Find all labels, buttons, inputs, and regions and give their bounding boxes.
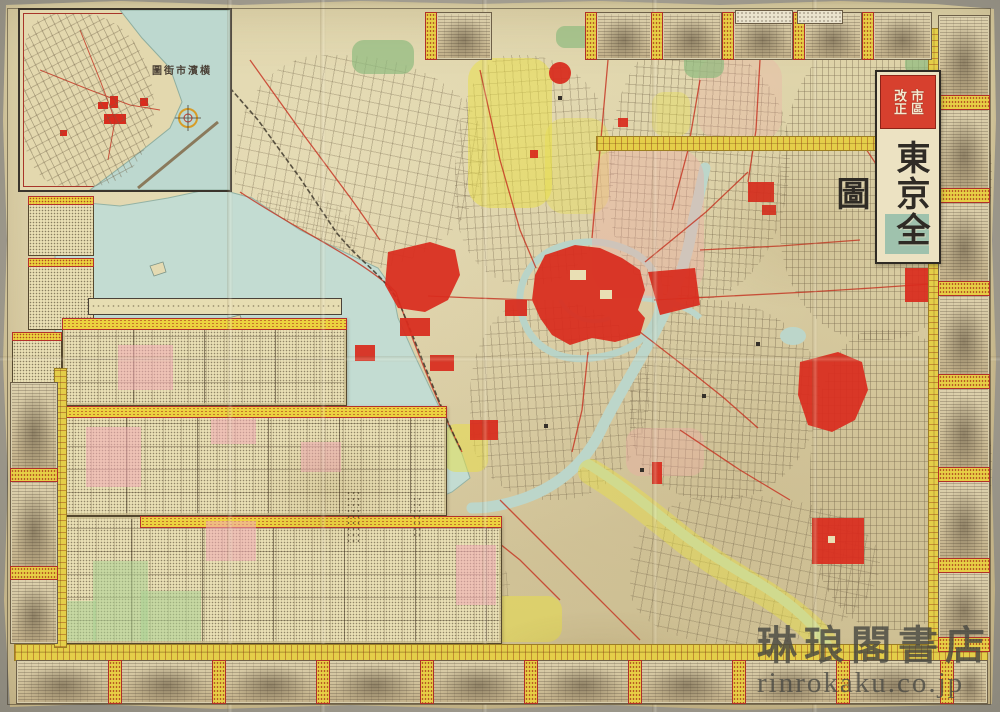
border-panel-label [10,566,58,580]
index-table-3 [60,516,502,644]
border-panel-label [212,660,226,704]
border-panel-label [836,660,850,704]
border-panel-illustration [938,108,990,190]
table-cell-tint [206,521,256,561]
border-panel-illustration [224,660,318,704]
border-panel-illustration [938,387,990,469]
border-panel-illustration [536,660,630,704]
border-panel-label [862,12,874,60]
inset-map-yokohama: 圖街市濱横 [18,8,232,192]
border-panel-illustration [596,12,652,60]
border-panel-label [938,188,990,203]
border-panel-label [316,660,330,704]
table-cell-tint [456,545,496,605]
border-panel-illustration [848,660,942,704]
border-panel-illustration [938,294,990,376]
border-panel-label [938,374,990,389]
table-header-bar [55,406,447,418]
border-panel-label [651,12,663,60]
title-top-left-column: 改正 [893,89,906,115]
map-title: 東京全圖 [877,130,939,258]
border-panel-illustration [662,12,722,60]
border-panel-illustration [436,12,492,60]
border-panel-illustration [10,382,58,470]
legend-header [12,332,62,341]
shinobazu-pond [780,327,806,345]
table-cell-tint [141,591,201,641]
border-panel-label [10,468,58,482]
title-cartouche: 市區 改正 東京全圖 [875,70,941,264]
border-panel-illustration [938,15,990,97]
border-panel-illustration [10,578,58,644]
border-panel-label [938,558,990,573]
border-panel-illustration [120,660,214,704]
honjo-block [812,518,864,564]
border-panel-label [425,12,437,60]
photo-of-antique-tokyo-map: 圖街市濱横 市區 改正 東京全圖 琳琅閣書店 rinrokaku.co.jp [0,0,1000,712]
legend-header [28,258,94,267]
border-panel-label [108,660,122,704]
top-label-box [735,10,793,24]
border-panel-illustration [432,660,526,704]
border-panel-illustration [10,480,58,568]
table-cell-tint [211,419,256,444]
border-panel-label [940,660,954,704]
border-panel-illustration [328,660,422,704]
border-panel-label [938,95,990,110]
table-cell-tint [86,427,141,487]
index-table-2 [55,406,447,516]
border-panel-label [938,281,990,296]
inset-title: 圖街市濱横 [152,62,212,77]
table-cell-tint [93,561,148,641]
border-panel-illustration [744,660,838,704]
border-panel-label [938,637,990,652]
border-panel-label [524,660,538,704]
border-panel-illustration [952,660,988,704]
title-top-label: 市區 改正 [880,75,936,129]
border-panel-illustration [938,201,990,283]
index-table-1 [62,318,347,406]
border-panel-label [420,660,434,704]
border-panel-label [938,467,990,482]
border-panel-illustration [640,660,734,704]
legend-box [28,196,94,256]
border-panel-label [628,660,642,704]
border-panel-illustration [938,571,990,639]
table-header-bar [62,318,347,330]
ueno-park [798,352,868,432]
table-caption-box [88,298,342,315]
border-panel-illustration [873,12,932,60]
table-cell-tint [301,442,341,472]
red-disc-mark [549,62,571,84]
scale-band-bottom [14,644,988,661]
legend-header [28,196,94,205]
border-panel-label [585,12,597,60]
title-top-right-column: 市區 [910,89,923,115]
publisher-note-marks [346,490,360,544]
table-cell-tint [66,601,96,641]
table-cell-tint [118,345,173,390]
border-panel-illustration [16,660,110,704]
shiba-park [385,242,460,312]
border-panel-illustration [938,480,990,560]
annotation-marks [412,496,422,538]
top-label-box [797,10,843,24]
border-panel-label [732,660,746,704]
table-header-bar [140,516,502,528]
border-panel-label [722,12,734,60]
